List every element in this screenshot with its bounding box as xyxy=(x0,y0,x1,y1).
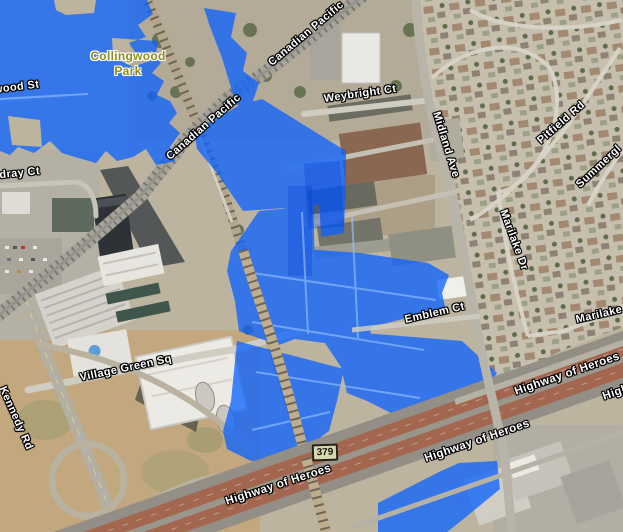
map-canvas[interactable]: Collingwood Park wood St ydray Ct Canadi… xyxy=(0,0,623,532)
satellite-layer xyxy=(0,0,623,532)
